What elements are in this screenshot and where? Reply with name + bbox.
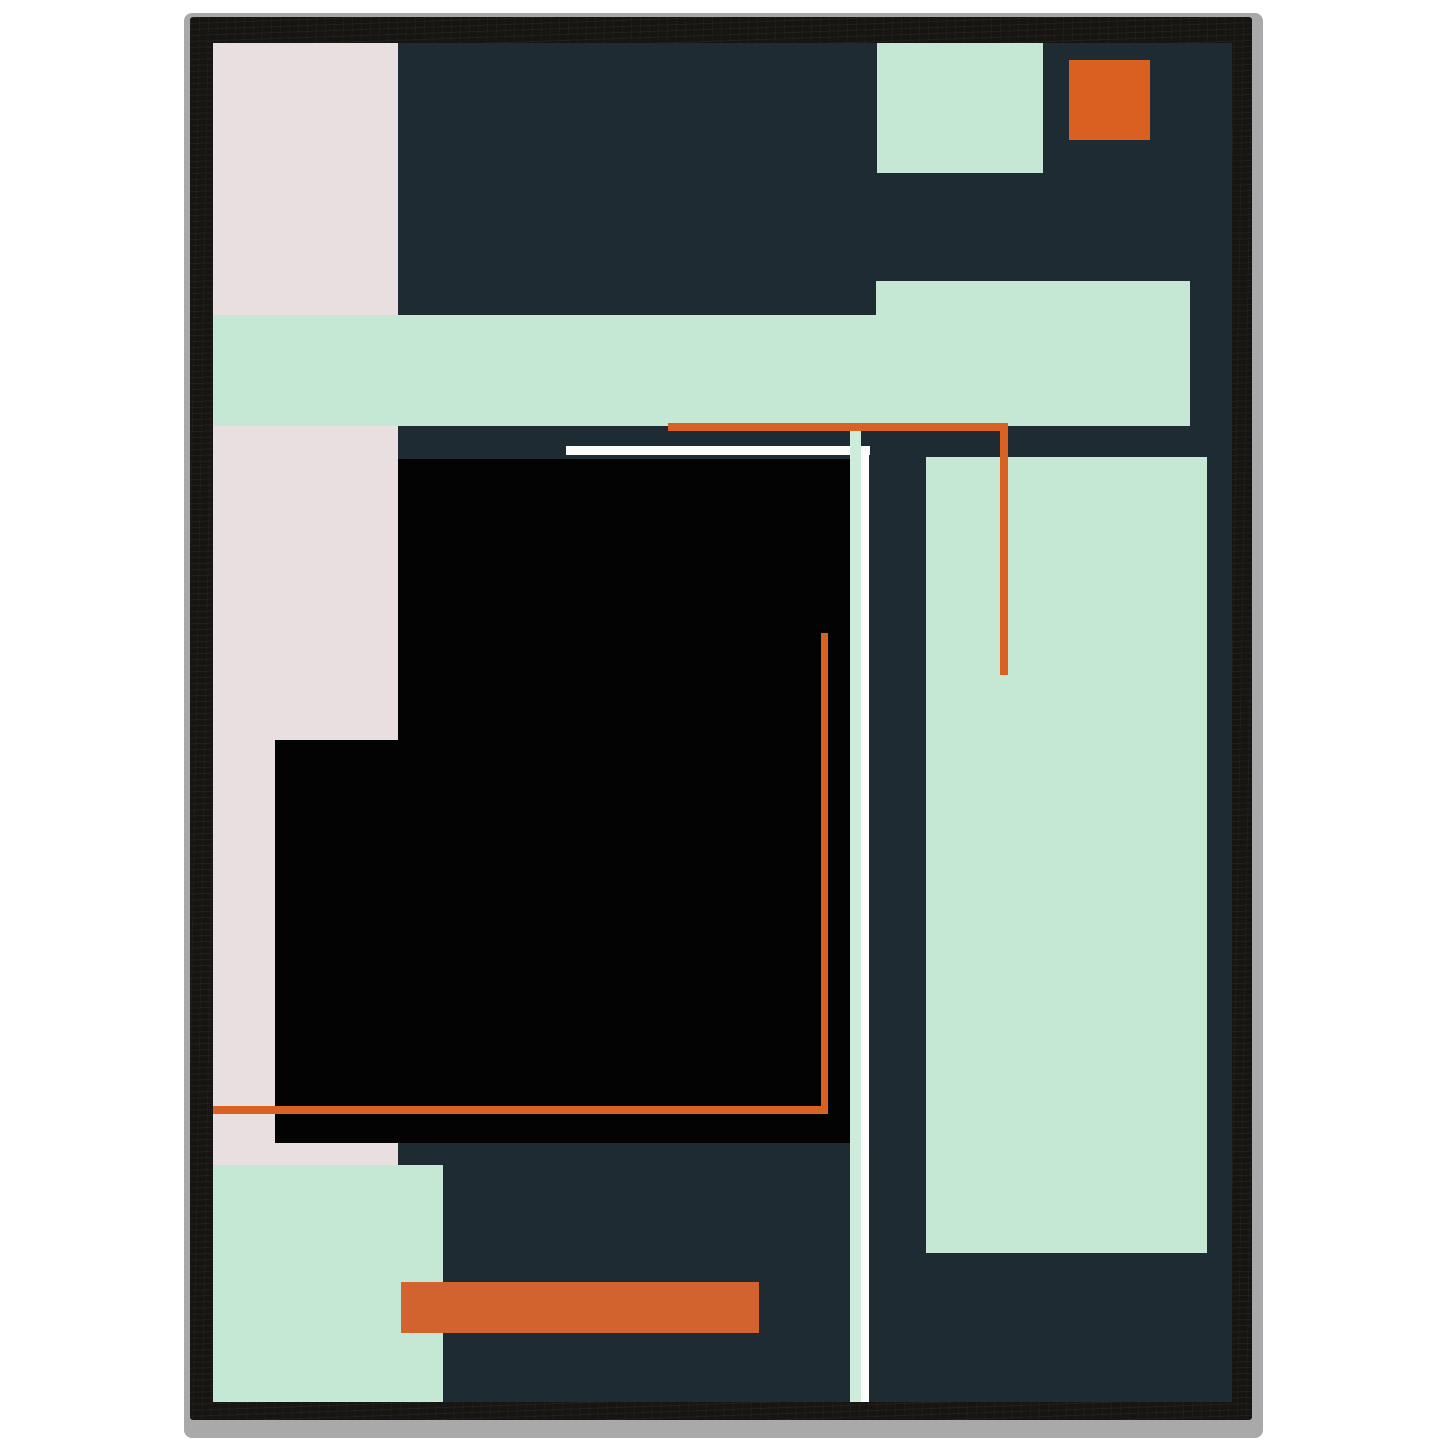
- mint-rect-right-tall: [926, 457, 1207, 1253]
- abstract-artwork-canvas: [213, 43, 1232, 1402]
- framed-poster-product-photo: [0, 0, 1445, 1445]
- orange-bar-bottom: [401, 1282, 759, 1333]
- white-line-vertical: [861, 446, 869, 1402]
- mint-line-vertical: [850, 424, 861, 1402]
- orange-line-top-horizontal: [668, 423, 1008, 431]
- black-square-left-extension: [275, 740, 398, 1143]
- mint-square-top: [877, 43, 1043, 173]
- orange-line-inner-vertical: [821, 633, 828, 1114]
- orange-line-top-vertical: [1000, 423, 1008, 675]
- black-square-main: [398, 459, 850, 1143]
- orange-line-bottom-horizontal: [213, 1106, 828, 1114]
- mint-band-horizontal: [213, 315, 1190, 426]
- orange-square-top-right: [1069, 60, 1150, 140]
- white-line-horizontal: [566, 446, 870, 455]
